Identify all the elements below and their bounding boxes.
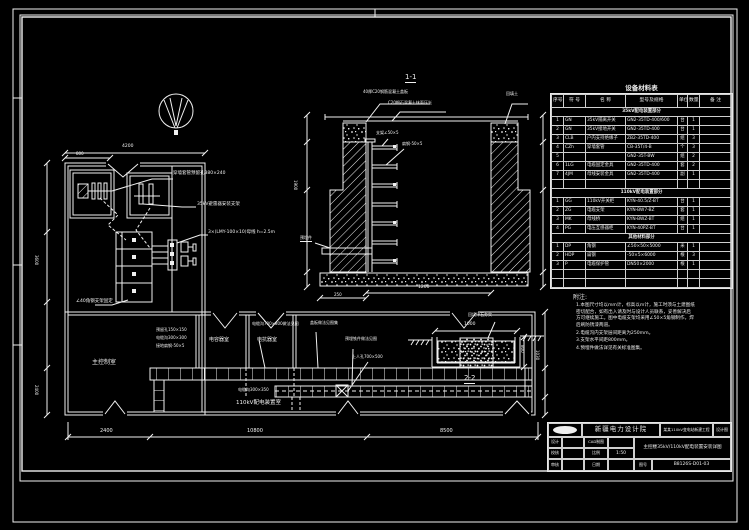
check-signature-cell xyxy=(562,448,584,459)
table-band-row: 其他材料部分 xyxy=(552,234,732,243)
annotation-label: 800 xyxy=(520,345,524,353)
notes-items: 1.本图尺寸均以mm计，标高以m计，施工时须与土建图纸密切配合，如有出入请及时与… xyxy=(573,303,695,353)
table-header-cell: 数量 xyxy=(688,95,700,108)
annotation-label: 35kV避雷器安装支架 xyxy=(197,203,240,208)
institute-logo xyxy=(548,423,582,437)
cad-drawing-sheet: 穿墙套管预留孔380×24035kV避雷器安装支架3×(LMY-100×10)母… xyxy=(0,0,749,530)
annotation-label: 预埋件 xyxy=(300,236,312,242)
drawing-number-label: 图号 xyxy=(634,459,652,471)
field-design-label: 设计 xyxy=(548,437,562,448)
annotation-label: 电缆沟300×350 xyxy=(238,388,269,392)
annotation-label: 2400 xyxy=(34,385,38,395)
institute-name: 新疆电力设计院 xyxy=(582,423,660,437)
annotation-label: 1200 xyxy=(418,286,429,291)
annotation-label: 预留孔150×150 xyxy=(156,328,187,332)
annotation-label: 1-1 xyxy=(405,74,416,83)
table-row: 1GN35kV隔离开关GN2-35TD-400/600台1 xyxy=(552,117,732,126)
north-arrow-symbol xyxy=(159,94,193,135)
table-row: 4CZh穿墙套管CB-35T/4-B个3 xyxy=(552,144,732,153)
parts-table-head: 序号符 号名 称型号及规格单位数量备 注 xyxy=(552,95,732,108)
annotation-label: 上人孔700×500 xyxy=(352,355,383,359)
table-band-row: 35kV配电装置部分 xyxy=(552,108,732,117)
notes-block: 附注: 1.本图尺寸均以mm计，标高以m计，施工时须与土建图纸密切配合，如有出入… xyxy=(573,292,695,354)
field-scale-label: 比例 xyxy=(584,448,608,459)
parts-table-title: 设备材料表 xyxy=(551,82,732,92)
annotation-label: 800 xyxy=(76,152,84,156)
table-row: 1DP角钢∠50×50×5000米1 xyxy=(552,243,732,252)
table-row: 3P电缆保护管DN50×2000根1 xyxy=(552,261,732,270)
note-item: 2.电缆沟内支架层间距离为250mm。 xyxy=(576,331,695,338)
scale-value: 1:50 xyxy=(608,448,634,459)
field-cad-label: CAD制图 xyxy=(584,437,608,448)
review-signature-cell xyxy=(562,459,584,471)
annotation-label: 10800 xyxy=(247,429,263,434)
design-signature-cell xyxy=(562,437,584,448)
design-stage: 设计图 xyxy=(713,423,731,437)
table-row: 2ZG电缆支架KYN-BW7-BZ套1 xyxy=(552,207,732,216)
parts-table-block: 设备材料表 序号符 号名 称型号及规格单位数量备 注 35kV配电装置部分1GN… xyxy=(551,82,732,288)
notes-title: 附注: xyxy=(573,292,695,301)
annotation-label: 主控制室 xyxy=(92,360,116,366)
table-row: 2GN35kV接地开关GN2-35TD-400台1 xyxy=(552,126,732,135)
table-row: 2HDP扁钢-50×5×6000根3 xyxy=(552,252,732,261)
annotation-label: 电容器室 xyxy=(209,338,229,343)
field-check-label: 校核 xyxy=(548,448,562,459)
project-name: 某某110kV变电站新建工程 xyxy=(660,423,713,437)
annotation-label: 扁钢-50×5 xyxy=(402,142,422,146)
annotation-label: 3×(LMY-100×10)母线 h=2.5m xyxy=(208,231,275,236)
note-item: 1.本图尺寸均以mm计，标高以m计，施工时须与土建图纸密切配合，如有出入请及时与… xyxy=(576,303,695,330)
note-item: 4.预埋件做法详见有关标准图集。 xyxy=(576,346,695,353)
table-row-blank xyxy=(552,180,732,189)
table-row-blank xyxy=(552,270,732,279)
annotation-label: 110kV配电装置室 xyxy=(236,401,281,407)
table-row: 4PG电压互感器柜KYN-40PZ-BT台1 xyxy=(552,225,732,234)
table-row: 61LG电缆固定金具GN2-35TD-400套2 xyxy=(552,162,732,171)
parts-table-body: 35kV配电装置部分1GN35kV隔离开关GN2-35TD-400/600台12… xyxy=(552,108,732,288)
cad-signature-cell xyxy=(608,437,634,448)
annotation-label: 回填碎石夯实 xyxy=(468,313,492,317)
table-row: 1GG110kV开关柜KYN-40.5/Z-BT台1 xyxy=(552,198,732,207)
drawing-number: B8126S-D01-03 xyxy=(652,459,731,471)
institute-logo-mark xyxy=(553,426,577,434)
annotation-label: 接地扁钢-50×5 xyxy=(156,344,184,348)
annotation-label: 电缆沟300×300 xyxy=(156,336,187,340)
annotation-label: 1000 xyxy=(464,323,475,328)
annotation-label: 支架∠50×5 xyxy=(376,131,399,135)
section-1-1 xyxy=(304,104,546,301)
table-row: 3MK母线桥KYN-BWZ-BT组1 xyxy=(552,216,732,225)
annotation-label: 盖板做法见图集 xyxy=(310,321,338,325)
annotation-label: 4200 xyxy=(122,145,133,150)
table-header-cell: 型号及规格 xyxy=(626,95,678,108)
field-date-label: 日期 xyxy=(584,459,608,471)
annotation-label: 2-2 xyxy=(464,375,475,384)
table-header-cell: 符 号 xyxy=(564,95,586,108)
annotation-label: 1030 xyxy=(535,350,539,360)
table-band-row: 110kV配电装置部分 xyxy=(552,189,732,198)
annotation-label: 电缆沟700×800做法见图 xyxy=(252,322,299,326)
table-header-cell: 备 注 xyxy=(700,95,732,108)
annotation-label: 回填土 xyxy=(506,92,518,96)
table-row: 3CLB户内支持绝缘子ZB2-35TD-400组3 xyxy=(552,135,732,144)
annotation-label: C20细石混凝土抹面压光 xyxy=(388,101,432,105)
annotation-label: 1900 xyxy=(293,180,297,190)
title-block: 新疆电力设计院 某某110kV变电站新建工程 设计图 设计 校核 审核 CAD制… xyxy=(548,423,731,471)
table-row-blank xyxy=(552,279,732,288)
table-header-cell: 单位 xyxy=(678,95,688,108)
annotation-label: 250 xyxy=(334,293,342,297)
table-row: 74JM母线安装金具GN2-35TD-400副1 xyxy=(552,171,732,180)
annotation-label: 电抗器室 xyxy=(257,338,277,343)
annotation-label: 2400 xyxy=(100,429,113,434)
drawing-title: 主控楼35kV/110kV配电装置安装详图 xyxy=(634,437,731,459)
annotation-label: 3600 xyxy=(34,255,38,265)
field-review-label: 审核 xyxy=(548,459,562,471)
annotation-label: 8500 xyxy=(440,429,453,434)
annotation-label: 预埋铁件做法见图 xyxy=(345,337,377,341)
date-value xyxy=(608,459,634,471)
note-item: 3.支架水平间距800mm。 xyxy=(576,338,695,345)
annotation-label: 穿墙套管预留孔380×240 xyxy=(173,172,225,177)
table-header-cell: 名 称 xyxy=(586,95,626,108)
annotation-label: ∠40角钢支架固定 xyxy=(76,300,113,305)
parts-table: 序号符 号名 称型号及规格单位数量备 注 35kV配电装置部分1GN35kV隔离… xyxy=(551,94,732,288)
annotation-label: 40厚C20钢筋混凝土盖板 xyxy=(363,90,408,94)
table-header-cell: 序号 xyxy=(552,95,564,108)
table-row: 5GN2-35T-BW组2 xyxy=(552,153,732,162)
